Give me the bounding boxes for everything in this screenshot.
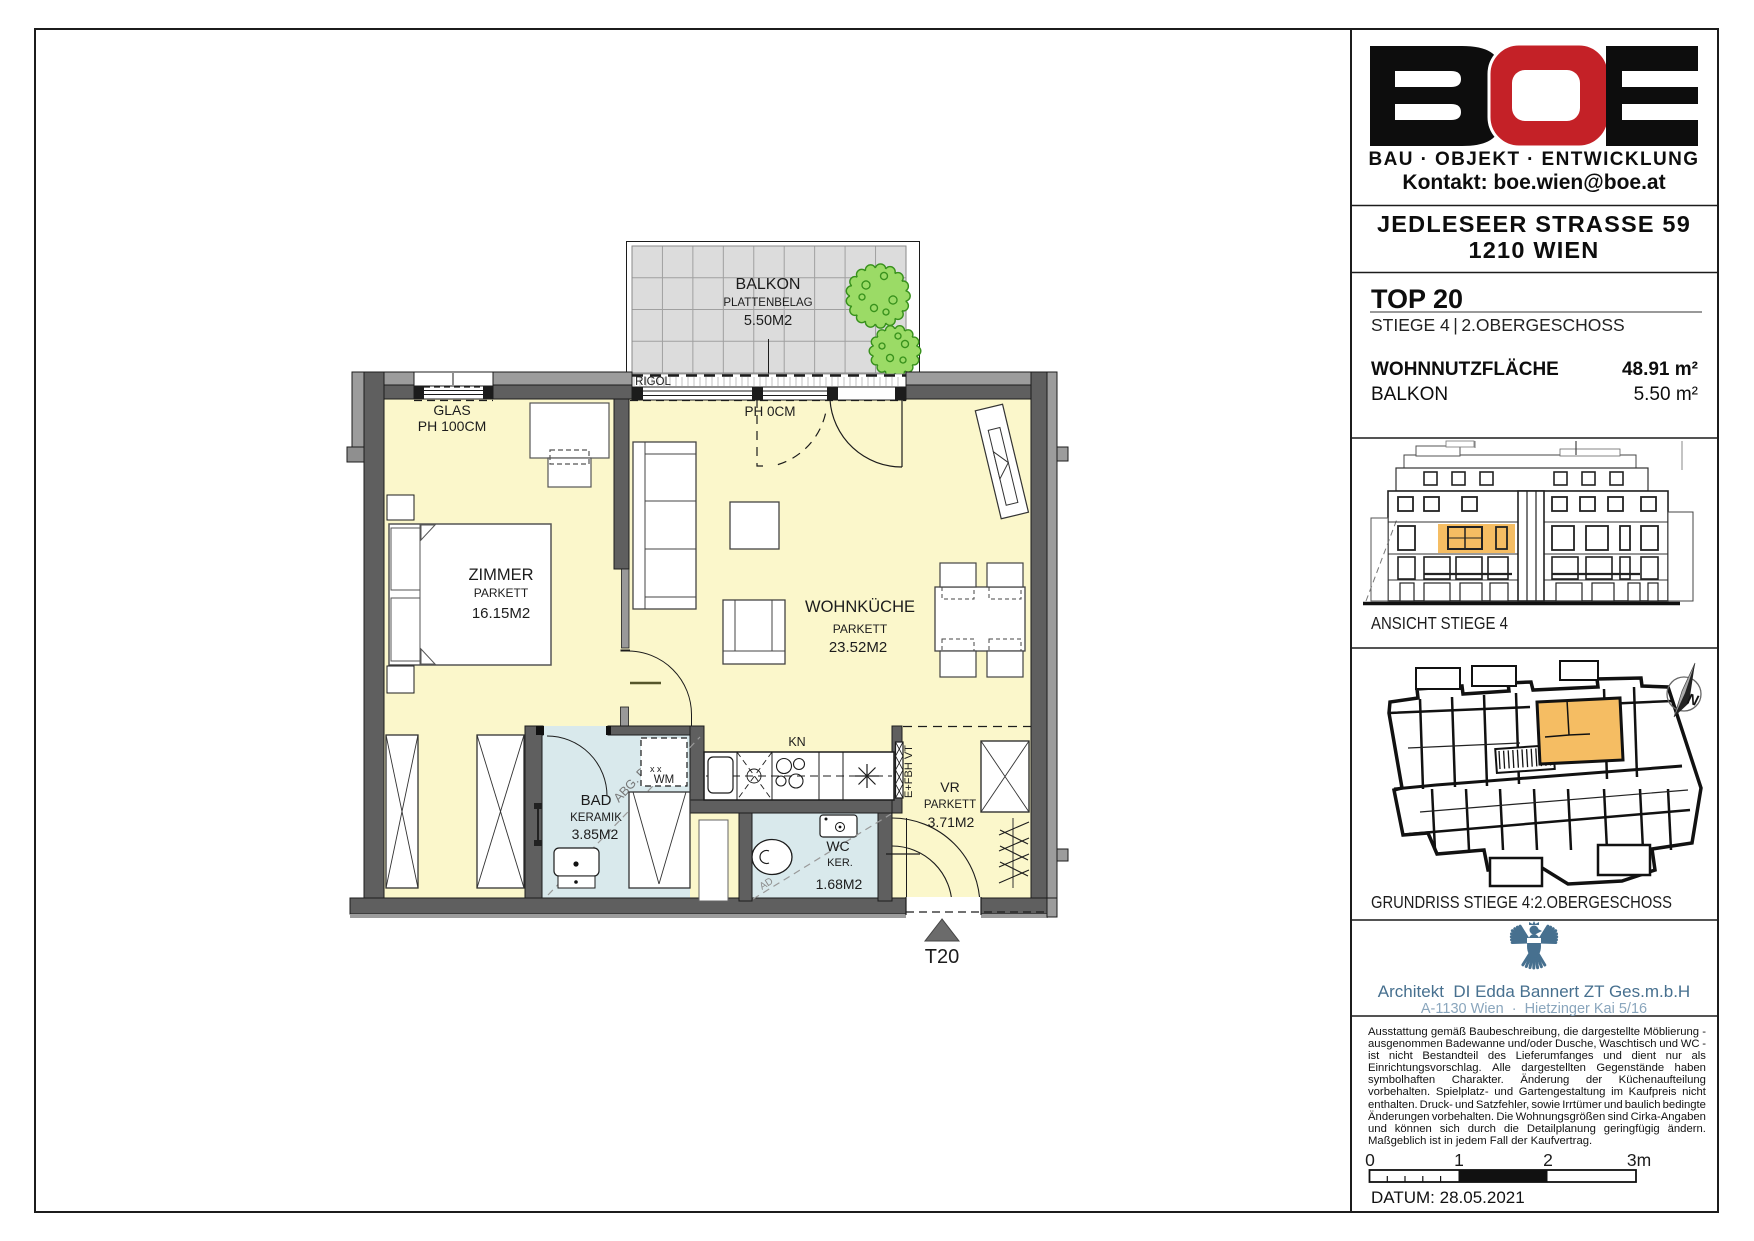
svg-text:1: 1 xyxy=(1454,1150,1464,1170)
svg-text:WM: WM xyxy=(654,774,674,786)
svg-text:KERAMIK: KERAMIK xyxy=(570,812,622,824)
svg-text:T20: T20 xyxy=(925,946,959,968)
svg-text:PH 100CM: PH 100CM xyxy=(418,418,486,434)
svg-text:RIGOL: RIGOL xyxy=(635,376,671,388)
svg-text:KER.: KER. xyxy=(827,857,853,869)
svg-text:PARKETT: PARKETT xyxy=(833,622,888,636)
svg-text:PARKETT: PARKETT xyxy=(474,586,529,600)
svg-text:BALKON: BALKON xyxy=(736,276,801,293)
svg-text:GLAS: GLAS xyxy=(433,402,470,418)
svg-text:WOHNKÜCHE: WOHNKÜCHE xyxy=(805,598,915,616)
svg-text:E+FBH VT: E+FBH VT xyxy=(903,745,915,798)
svg-text:x x: x x xyxy=(650,764,662,774)
svg-text:PLATTENBELAG: PLATTENBELAG xyxy=(723,297,812,309)
svg-text:VR: VR xyxy=(940,779,959,795)
svg-text:WC: WC xyxy=(826,838,849,854)
svg-text:0: 0 xyxy=(1365,1150,1375,1170)
svg-text:PARKETT: PARKETT xyxy=(924,799,976,811)
svg-text:BAD: BAD xyxy=(581,792,612,809)
svg-text:KN: KN xyxy=(788,735,805,749)
svg-text:3.85M2: 3.85M2 xyxy=(572,826,619,842)
svg-text:PH 0CM: PH 0CM xyxy=(744,404,795,419)
svg-text:3m: 3m xyxy=(1627,1150,1651,1170)
svg-text:5.50M2: 5.50M2 xyxy=(744,313,792,329)
svg-text:3.71M2: 3.71M2 xyxy=(928,814,975,830)
svg-text:1.68M2: 1.68M2 xyxy=(816,876,863,892)
svg-text:23.52M2: 23.52M2 xyxy=(829,639,887,656)
svg-text:ZIMMER: ZIMMER xyxy=(468,566,533,584)
svg-text:2: 2 xyxy=(1543,1150,1553,1170)
svg-text:ANSICHT STIEGE 4: ANSICHT STIEGE 4 xyxy=(1371,613,1508,633)
svg-text:GRUNDRISS STIEGE 4:2.OBERGESCH: GRUNDRISS STIEGE 4:2.OBERGESCHOSS xyxy=(1371,892,1672,912)
svg-text:16.15M2: 16.15M2 xyxy=(472,605,530,622)
